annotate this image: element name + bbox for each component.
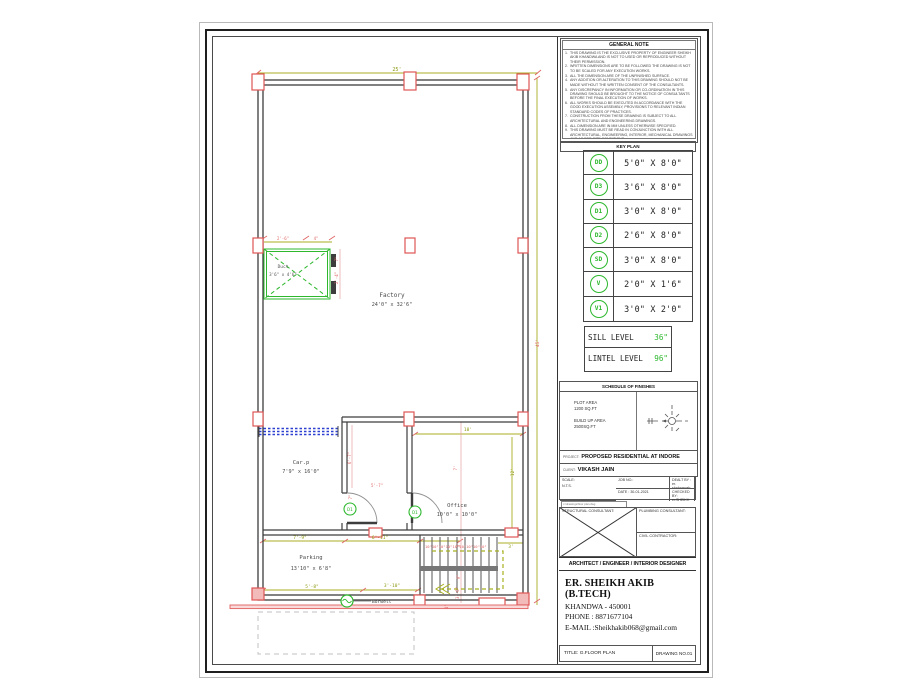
key-plan-row: V 2'0" X 1'6" xyxy=(584,272,692,296)
door-1-badge: D1 xyxy=(344,503,356,515)
sill-level-value: 36" xyxy=(654,333,668,342)
dim-6-11: 6'-11" xyxy=(372,535,388,541)
title-block-column: GENERAL NOTE THIS DRAWING IS THE EXCLUSI… xyxy=(557,37,700,664)
levels-box: SILL LEVEL 36" LINTEL LEVEL 96" xyxy=(584,326,672,372)
dim-3-10: 3'-10" xyxy=(384,583,400,589)
dim-7ft: 7' xyxy=(453,466,458,471)
dim-duct-2-6: 2'-6" xyxy=(277,236,289,241)
dim-9in: 9" xyxy=(456,575,461,580)
door-2-badge: D1 xyxy=(409,506,421,518)
client-value: VIKASH JAIN xyxy=(578,467,615,473)
dim-5-8: 5'-8" xyxy=(305,584,319,590)
structural-consultant-cell: STRUCTURAL CONSULTANT: xyxy=(560,508,637,556)
area-figures: PLOT AREA 1200 SQ.FT BUILD UP AREA 2500S… xyxy=(560,392,637,450)
dim-7a: 7" xyxy=(348,495,353,500)
project-row: PROJECT: PROPOSED RESIDENTIAL AT INDORE xyxy=(559,450,698,464)
factory-label: Factory xyxy=(379,292,405,299)
borwell-label: Borwell xyxy=(372,599,392,605)
dim-5-7: 5'-7" xyxy=(371,483,383,488)
door-code-badge: SD xyxy=(590,251,608,269)
dim-3-6: 3'-6" xyxy=(455,587,460,599)
floor-plan-canvas: D1 D1 xyxy=(213,36,557,663)
note-item: ANY ADDITION OR ALTERATION TO THIS DRAWI… xyxy=(565,78,693,87)
project-label: PROJECT: xyxy=(560,455,581,459)
room-labels: Factory 24'0" x 32'6" Car.p 7'9" x 16'0"… xyxy=(269,264,477,572)
key-plan-row: DD 5'0" X 8'0" xyxy=(584,151,692,175)
contact-block: ER. SHEIKH AKIB (B.TECH) KHANDWA - 45000… xyxy=(559,570,696,644)
note-item: ALL WORKS SHOULD BE EXECUTED IN ACCORDAN… xyxy=(565,101,693,114)
factory-size: 24'0" x 32'6" xyxy=(372,302,413,308)
schedule-of-finishes-box: SCHEDULE OF FINISHES PLOT AREA 1200 SQ.F… xyxy=(559,381,698,451)
key-plan-row: SD 3'0" X 8'0" xyxy=(584,248,692,272)
note-item: THIS DRAWING IS THE EXCLUSIVE PROPERTY O… xyxy=(565,51,693,64)
dim-office-w: 10' xyxy=(464,427,472,433)
finishes-title: SCHEDULE OF FINISHES xyxy=(560,382,697,392)
consultants-box: STRUCTURAL CONSULTANT: PLUMBING CONSULTA… xyxy=(559,507,696,557)
meta-grid: JOB NO.: DEALT BY : er. shahnawab SCALE:… xyxy=(559,476,696,500)
dim-stair-treads: 10"10"10"10"10"10"10"10"10" xyxy=(425,544,487,549)
key-plan-row: V1 3'0" X 2'0" xyxy=(584,297,692,321)
parking-size: 13'10" x 6'8" xyxy=(291,566,332,572)
dealt-by-cell: DEALT BY : er. shahnawab xyxy=(670,477,695,489)
door-code-badge: D2 xyxy=(590,226,608,244)
dim-duct-2-4: 2'-4" xyxy=(334,272,339,284)
door-size: 3'6" X 8'0" xyxy=(614,175,692,198)
compound-wall-band xyxy=(230,605,528,609)
engineer-phone: PHONE : 8871677104 xyxy=(565,612,696,621)
job-no-cell: JOB NO.: xyxy=(616,477,670,489)
note-item: THIS DRAWING MUST BE READ IN CONJUNCTION… xyxy=(565,128,693,139)
svg-text:D1: D1 xyxy=(347,507,353,513)
key-plan-row: D1 3'0" X 8'0" xyxy=(584,200,692,224)
key-plan-row: D2 2'6" X 8'0" xyxy=(584,224,692,248)
door-size: 2'6" X 8'0" xyxy=(614,224,692,247)
outer-walls xyxy=(258,80,528,600)
door-code-badge: D1 xyxy=(590,202,608,220)
interior-walls xyxy=(263,417,523,600)
engineer-address: KHANDWA - 450001 xyxy=(565,602,696,611)
note-item: ALL DIMENSION ARE IN MM UNLESS OTHERWISE… xyxy=(565,124,693,128)
general-note-list: THIS DRAWING IS THE EXCLUSIVE PROPERTY O… xyxy=(563,50,695,139)
dim-stair-landing: 3' xyxy=(508,544,513,550)
drawing-sheet: D1 D1 xyxy=(0,0,900,700)
open-area-dashed xyxy=(258,612,414,654)
scale-cell: SCALE: N.T.S. xyxy=(560,477,616,501)
columns xyxy=(252,72,529,606)
lintel-level-value: 96" xyxy=(654,354,668,363)
door-code-badge: V xyxy=(590,275,608,293)
carport-size: 7'9" x 16'0" xyxy=(282,469,319,475)
drawing-number: DRAWING NO.01 xyxy=(652,646,695,661)
project-value: PROPOSED RESIDENTIAL AT INDORE xyxy=(581,454,679,460)
door-code-badge: DD xyxy=(590,154,608,172)
note-item: ANY DISCREPANCY IN INFORMATION OR CO-ORD… xyxy=(565,88,693,101)
general-note-title: GENERAL NOTE xyxy=(563,41,695,50)
client-label: CLIENT: xyxy=(560,468,578,472)
note-item: CONSTRUCTION FROM THESE DRAWING IS SUBJE… xyxy=(565,114,693,123)
door-code-badge: V1 xyxy=(590,300,608,318)
plumbing-consultant-cell: PLUMBING CONSULTANT: xyxy=(637,508,695,533)
dim-4ft: 4' xyxy=(444,605,449,610)
sheet-title: TITLE: G.FLOOR PLAN xyxy=(560,646,652,661)
svg-text:D1: D1 xyxy=(412,510,418,516)
dim-duct-7: 7" xyxy=(334,257,339,262)
dim-duct-4: 4" xyxy=(314,236,319,241)
dim-7-9: 7'-9" xyxy=(293,535,307,541)
sill-level-label: SILL LEVEL xyxy=(588,333,634,342)
door-size: 3'0" X 8'0" xyxy=(614,200,692,223)
sheet-title-bar: TITLE: G.FLOOR PLAN DRAWING NO.01 xyxy=(559,645,696,662)
dim-top-width: 25' xyxy=(392,67,401,73)
door-size: 3'0" X 8'0" xyxy=(614,248,692,271)
civil-contractor-cell: CIVIL CONTRACTOR: xyxy=(637,533,695,557)
key-plan-row: D3 3'6" X 8'0" xyxy=(584,175,692,199)
builtup-area-value: 2500SQ.FT xyxy=(574,424,636,430)
lintel-level-label: LINTEL LEVEL xyxy=(588,354,643,363)
designer-bar: ARCHITECT / ENGINEER / INTERIOR DESIGNER xyxy=(559,557,696,571)
dim-texts-olive: 25' 10' 12' 7'-9" 6'-11" 5'-8" 3'-10" 3' xyxy=(293,67,516,590)
dimension-ticks xyxy=(255,70,541,603)
dim-6-7: 6'-7" xyxy=(347,452,352,464)
carport-gate xyxy=(259,426,338,437)
note-item: ALL THE DIMENSION ARE OF THE UNFINISHED … xyxy=(565,74,693,78)
door-size: 3'0" X 2'0" xyxy=(614,297,692,321)
office-label: Office xyxy=(447,503,467,509)
checked-by-cell: CHECKED BY: er.SHEIKH AKIB xyxy=(670,489,695,501)
general-note-box: GENERAL NOTE THIS DRAWING IS THE EXCLUSI… xyxy=(560,38,698,143)
client-row: CLIENT: VIKASH JAIN xyxy=(559,463,698,477)
key-plan-table: DD 5'0" X 8'0" D3 3'6" X 8'0" D1 3'0" X … xyxy=(583,150,693,322)
door-size: 5'0" X 8'0" xyxy=(614,151,692,174)
engineer-email: E-MAIL :Sheikhakib068@gmail.com xyxy=(565,623,696,632)
office-size: 10'0" x 10'0" xyxy=(437,512,478,518)
north-compass-icon xyxy=(644,401,690,441)
dim-right-height: 45' xyxy=(535,339,541,347)
duct-size: 3'6" x 4'6" xyxy=(269,272,297,277)
door-size: 2'0" X 1'6" xyxy=(614,272,692,295)
note-item: WRITTEN DIMENSIONS ARE TO BE FOLLOWED TH… xyxy=(565,64,693,73)
duct-label: Duct xyxy=(278,264,289,270)
engineer-name: ER. SHEIKH AKIB (B.TECH) xyxy=(565,578,696,600)
door-code-badge: D3 xyxy=(590,178,608,196)
dimension-lines xyxy=(258,73,538,605)
parking-label: Parking xyxy=(299,555,322,561)
date-cell: DATE : 30-01-2021 xyxy=(616,489,670,501)
dim-office-h: 12' xyxy=(510,468,516,476)
carport-label: Car.p xyxy=(293,460,310,466)
